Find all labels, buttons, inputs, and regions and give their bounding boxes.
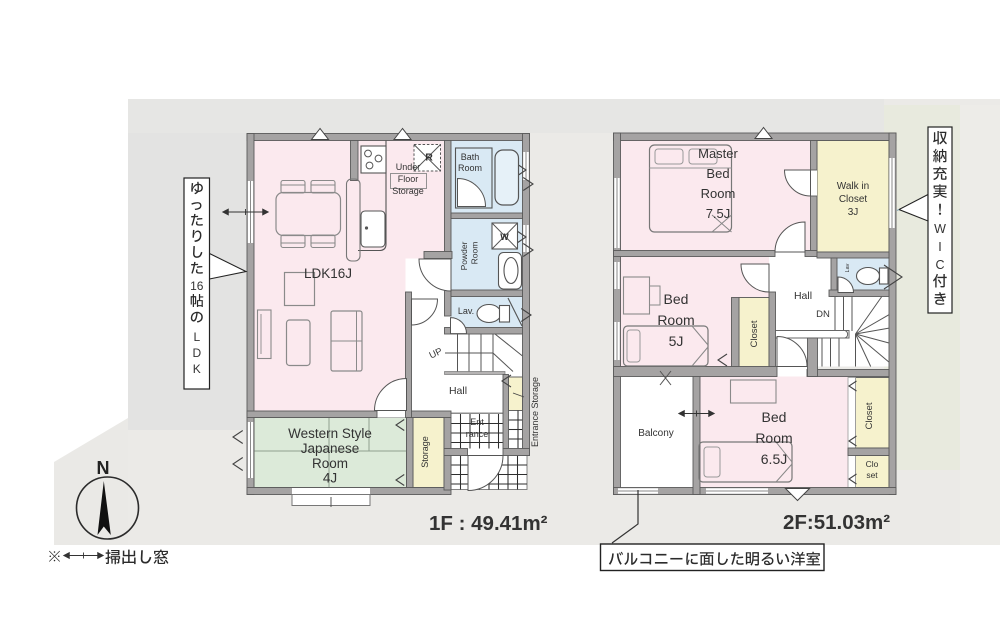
svg-text:6.5J: 6.5J (761, 451, 787, 467)
svg-text:7.5J: 7.5J (706, 206, 731, 221)
svg-text:Under: Under (396, 162, 421, 172)
svg-text:Hall: Hall (794, 290, 812, 302)
svg-text:Hall: Hall (449, 385, 467, 397)
svg-text:Master: Master (698, 146, 738, 161)
svg-text:L: L (193, 330, 200, 344)
svg-text:R: R (425, 152, 433, 164)
svg-text:Room: Room (470, 242, 480, 265)
svg-text:set: set (866, 470, 878, 480)
svg-text:Western Style: Western Style (288, 426, 372, 441)
svg-text:Japanese: Japanese (301, 441, 360, 456)
svg-text:I: I (938, 240, 941, 254)
svg-text:W: W (934, 222, 946, 236)
svg-text:Lav.: Lav. (458, 306, 474, 316)
svg-text:C: C (935, 258, 944, 272)
svg-text:Bed: Bed (706, 166, 729, 181)
svg-text:5J: 5J (669, 333, 684, 349)
svg-text:4J: 4J (323, 471, 337, 486)
svg-text:Bed: Bed (762, 409, 787, 425)
svg-text:Room: Room (755, 430, 792, 446)
svg-text:Clo: Clo (866, 459, 879, 469)
svg-text:2F:51.03m²: 2F:51.03m² (783, 511, 890, 534)
svg-text:Storage: Storage (392, 186, 424, 196)
svg-text:Floor: Floor (398, 174, 419, 184)
svg-text:Lav: Lav (845, 263, 851, 272)
svg-text:Room: Room (458, 163, 482, 173)
svg-text:Entrance Storage: Entrance Storage (530, 377, 540, 447)
svg-text:16: 16 (190, 279, 204, 293)
svg-text:Powder: Powder (459, 241, 469, 270)
svg-text:1F : 49.41m²: 1F : 49.41m² (429, 512, 548, 535)
svg-text:K: K (193, 362, 201, 376)
svg-text:Room: Room (701, 186, 736, 201)
svg-text:rance: rance (466, 429, 489, 439)
svg-text:3J: 3J (848, 207, 859, 218)
svg-text:Bath: Bath (461, 152, 480, 162)
svg-text:Room: Room (657, 312, 694, 328)
svg-text:D: D (192, 346, 201, 360)
svg-text:Closet: Closet (749, 320, 760, 347)
svg-text:Bed: Bed (664, 291, 689, 307)
svg-text:LDK16J: LDK16J (304, 266, 352, 281)
svg-text:Balcony: Balcony (638, 428, 674, 439)
svg-text:Ent: Ent (470, 417, 484, 427)
svg-text:Storage: Storage (420, 436, 430, 468)
svg-text:Closet: Closet (839, 194, 868, 205)
svg-text:W: W (500, 232, 509, 242)
svg-text:Walk in: Walk in (837, 181, 869, 192)
svg-text:DN: DN (816, 309, 830, 320)
svg-text:Room: Room (312, 456, 348, 471)
svg-text:N: N (97, 458, 110, 478)
svg-text:Closet: Closet (864, 402, 875, 429)
